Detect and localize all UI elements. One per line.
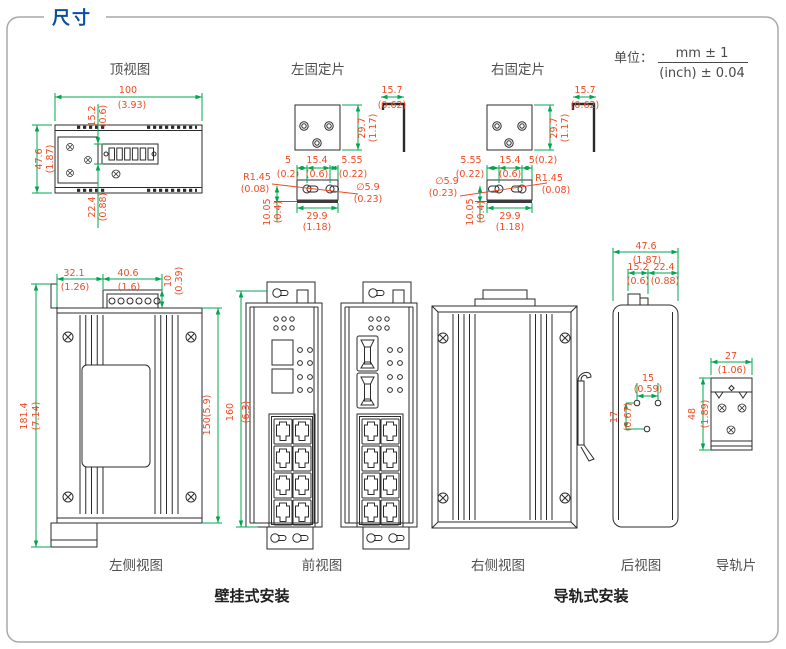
dim-top-bottom-offset-mm: 22.4: [87, 196, 98, 217]
corner-miters: [432, 306, 577, 528]
plate-hole: [325, 122, 333, 130]
dim-lside-total-h-mm: 181.4: [19, 402, 30, 429]
dim-lplate-height-mm: 29.7: [357, 117, 368, 138]
dim-rear-clip-offset-mm: 22.4: [653, 262, 674, 273]
screw-mark: [560, 493, 570, 503]
caption-rear-view: 后视图: [621, 558, 662, 574]
view-rail-plate: 导轨片 27 (1.06) 48 (1.89): [687, 351, 756, 574]
right-side-drawing: [432, 290, 594, 528]
rj45-port: [274, 500, 292, 525]
plate-tab: [297, 290, 308, 303]
rail-plate-dimensions: 27 (1.06) 48 (1.89): [687, 351, 752, 450]
screw-mark: [63, 332, 73, 342]
screw-hole: [634, 400, 640, 406]
rj45-port: [274, 419, 292, 444]
keyhole-slot: [273, 289, 288, 297]
view-right-side: 右侧视图: [432, 290, 594, 574]
dim-rear-clip-w-mm: 15.2: [627, 262, 648, 273]
plate-outline: [487, 105, 532, 150]
fiber-connector: [357, 336, 378, 371]
port-led-column: [388, 348, 403, 393]
keyhole-slot: [369, 289, 384, 297]
dim-rplate-radius-inch: (0.08): [542, 185, 571, 196]
dim-rplate-hole-mm: ∅5.9: [435, 176, 458, 187]
terminal-block: [483, 290, 527, 299]
view-left-side: 左侧视图 32.1 (1.26) 40.: [19, 267, 222, 574]
dimension-page: 尺寸 单位： mm ± 1 (inch) ± 0.04 顶视图: [0, 0, 786, 649]
rear-dimensions: 47.6 (1.87) 15.2 (0.6) 22.4 (0.88) 15 (0…: [609, 241, 679, 431]
dim-lplate-end-mm: 5.55: [341, 155, 362, 166]
plate-hole: [493, 122, 501, 130]
unit-mm-tolerance: mm ± 1: [676, 46, 729, 61]
rj45-port: [381, 500, 399, 525]
keyhole-slot: [389, 534, 404, 542]
dim-lplate-width-mm: 29.9: [306, 211, 327, 222]
label-wall-mount: 壁挂式安装: [214, 587, 290, 605]
fiber-connector: [357, 373, 378, 408]
center-mark: [729, 386, 734, 391]
page-title: 尺寸: [52, 7, 92, 29]
rj45-port: [362, 419, 380, 444]
dim-lside-terminal-w-inch: (1.6): [118, 282, 141, 293]
dim-rplate-height-inch: (1.17): [560, 114, 571, 143]
dim-top-bottom-offset-inch: (0.88): [98, 193, 109, 222]
dim-rplate-end-inch: (0.22): [456, 169, 485, 180]
screw-mark: [438, 493, 448, 503]
dim-rear-hole-v-mm: 17: [609, 411, 620, 423]
led-grid: [274, 317, 294, 330]
dim-rplate-pitch-mm: 15.4: [499, 155, 520, 166]
view-rear: 后视图 47.6 (1.87) 15.2 (0.6) 22.4 (0.88): [609, 241, 679, 574]
dim-top-depth-inch: (1.87): [45, 145, 56, 174]
dim-lplate-edge-inch: (0.2): [277, 169, 300, 180]
screw-mark: [112, 170, 120, 178]
plate-tab: [393, 290, 404, 303]
dim-rplate-hole-inch: (0.23): [429, 188, 458, 199]
screw-mark: [727, 426, 735, 434]
caption-right-side-view: 右侧视图: [471, 558, 525, 574]
dim-rplate-width-inch: (1.18): [496, 222, 525, 233]
dim-rplate-tab-inch: (0.62): [571, 100, 600, 111]
plate-side-profile: [573, 104, 594, 152]
caption-left-plate: 左固定片: [291, 62, 345, 78]
screw-mark: [67, 144, 74, 151]
caption-top-view: 顶视图: [110, 62, 151, 78]
left-plate-slot-view: 5 (0.2) 15.4 (0.6) 5.55 (0.22) R1.45 (0.…: [241, 155, 383, 233]
dim-front-height-inch: (6.3): [241, 401, 252, 424]
dim-lplate-width-inch: (1.18): [303, 222, 332, 233]
dim-rear-hole-pitch-inch: (0.59): [634, 384, 663, 395]
screw-mark: [85, 157, 92, 164]
dim-rear-hole-v-inch: (0.67): [623, 403, 634, 432]
sfp-slot: [272, 340, 293, 365]
dim-top-offset-mm: 15.2: [87, 105, 98, 126]
dim-rear-width-mm: 47.6: [635, 241, 656, 252]
vent-lines: [530, 314, 552, 520]
rj45-port: [274, 446, 292, 471]
screw-hole: [644, 426, 650, 432]
dim-rplate-width-mm: 29.9: [499, 211, 520, 222]
left-plate-face: 29.7 (1.17) 15.7 (0.62): [295, 85, 406, 152]
dim-rplate-thickness-mm: 10.05: [465, 198, 476, 225]
dimension-drawing: 尺寸 单位： mm ± 1 (inch) ± 0.04 顶视图: [0, 0, 786, 649]
rail-plate-outline: [711, 378, 752, 450]
top-mount-plate: [58, 137, 98, 183]
plate-lip: [487, 200, 532, 204]
dim-rplate-thickness-inch: (0.4): [476, 201, 487, 224]
front-device-fiber-st: [341, 282, 417, 549]
dim-lplate-thickness-mm: 10.05: [262, 198, 273, 225]
din-hook: [640, 298, 648, 305]
mount-foot: [51, 523, 97, 547]
dim-lside-body-h: 150(5.9): [202, 395, 213, 436]
dim-lplate-hole-mm: ∅5.9: [356, 182, 379, 193]
port-led-column: [298, 348, 313, 393]
caption-front-view: 前视图: [302, 557, 343, 574]
plate-hole: [518, 122, 526, 130]
dim-rail-height-mm: 48: [687, 408, 698, 420]
plate-lip: [297, 200, 338, 204]
view-right-fixing-plate: 右固定片 29.7 (1.17) 15.7 (0.62): [429, 62, 600, 233]
dim-lside-left-seg-mm: 32.1: [63, 268, 84, 279]
dim-lplate-pitch-inch: (0.6): [306, 169, 329, 180]
dim-lplate-edge-mm: 5: [285, 155, 291, 166]
rj45-port: [293, 473, 311, 498]
rj45-port: [293, 446, 311, 471]
dim-lside-terminal-w-mm: 40.6: [117, 268, 138, 279]
keyhole-slot: [271, 534, 286, 542]
dim-lside-total-h-inch: (7.14): [31, 402, 42, 431]
din-hook: [628, 294, 640, 305]
dim-front-height-mm: 160: [225, 403, 236, 421]
view-top: 顶视图 100 (3.93) 15.2: [32, 62, 202, 228]
dim-rplate-edge: 5(0.2): [529, 155, 558, 166]
dim-lplate-hole-inch: (0.23): [354, 194, 383, 205]
rj45-port: [293, 419, 311, 444]
dim-rplate-height-mm: 29.7: [549, 117, 560, 138]
body-rails: [250, 307, 318, 523]
dim-rplate-end-mm: 5.55: [460, 155, 481, 166]
led-grid: [369, 317, 389, 330]
rj45-port: [381, 446, 399, 471]
dim-rail-width-inch: (1.06): [718, 365, 747, 376]
keyhole-slot: [367, 534, 382, 542]
right-plate-slot-view: 5.55 (0.22) 15.4 (0.6) 5(0.2) R1.45 (0.0…: [429, 155, 571, 233]
screw-mark: [186, 332, 196, 342]
screw-mark: [67, 170, 74, 177]
rj45-port: [293, 500, 311, 525]
rail-hooks: [715, 392, 747, 398]
right-plate-face: 29.7 (1.17) 15.7 (0.62): [487, 85, 599, 152]
dim-rplate-radius-mm: R1.45: [535, 173, 563, 184]
screw-mark: [738, 404, 746, 412]
rj45-port: [381, 419, 399, 444]
plate-outline: [487, 180, 532, 200]
rj45-port: [362, 473, 380, 498]
dim-rail-height-inch: (1.89): [700, 400, 711, 429]
screw-mark: [186, 492, 196, 502]
din-rail-clip: [578, 372, 594, 461]
dim-top-width-mm: 100: [119, 85, 137, 96]
screw-mark: [718, 404, 726, 412]
mount-labels: 壁挂式安装 导轨式安装: [214, 587, 629, 605]
rj45-port: [274, 473, 292, 498]
dim-lside-terminal-h-inch: (0.39): [174, 267, 185, 296]
label-plate: [82, 365, 150, 467]
view-left-fixing-plate: 左固定片 29.7 (1.17) 15.7 (0.62): [241, 62, 407, 233]
plate-hole: [313, 139, 321, 147]
rj45-port: [362, 500, 380, 525]
dim-rail-width-mm: 27: [725, 351, 737, 362]
caption-left-side-view: 左侧视图: [109, 558, 163, 574]
unit-note: 单位： mm ± 1 (inch) ± 0.04: [614, 46, 748, 81]
keyhole-slot: [293, 534, 308, 542]
front-body-outline: [341, 303, 417, 527]
caption-rail-plate: 导轨片: [716, 558, 757, 574]
dim-lside-terminal-h-mm: 10: [163, 275, 174, 287]
sfp-slot: [272, 369, 293, 393]
dim-lplate-thickness-inch: (0.4): [273, 201, 284, 224]
rj45-port: [362, 446, 380, 471]
dim-rear-hole-pitch-mm: 15: [642, 373, 654, 384]
terminal-pins: [109, 148, 154, 160]
left-side-drawing: [51, 284, 202, 547]
rail-plate-drawing: [711, 378, 752, 450]
side-body-outline: [432, 306, 577, 528]
dim-lplate-radius-mm: R1.45: [243, 172, 271, 183]
dim-rear-clip-w-inch: (0.6): [627, 276, 650, 287]
dim-lplate-tab-inch: (0.62): [378, 100, 407, 111]
dim-rplate-tab-mm: 15.7: [574, 85, 595, 96]
dim-lplate-tab-mm: 15.7: [381, 85, 402, 96]
dim-lplate-end-inch: (0.22): [339, 169, 368, 180]
plate-hole: [300, 122, 308, 130]
screw-hole: [655, 400, 661, 406]
dim-rplate-pitch-inch: (0.6): [499, 169, 522, 180]
screw-mark: [63, 492, 73, 502]
dim-lside-left-seg-inch: (1.26): [61, 282, 90, 293]
slot-centerline: [460, 183, 547, 196]
vent-lines: [453, 314, 475, 520]
view-front: 前视图: [225, 282, 417, 574]
dim-top-width-inch: (3.93): [118, 100, 147, 111]
plate-side-profile: [383, 104, 404, 152]
dim-top-depth-mm: 47.6: [34, 148, 45, 169]
dim-lplate-pitch-mm: 15.4: [306, 155, 327, 166]
caption-right-plate: 右固定片: [491, 62, 545, 78]
label-rail-mount: 导轨式安装: [553, 587, 629, 605]
dim-lplate-height-inch: (1.17): [368, 114, 379, 143]
screw-mark: [560, 333, 570, 343]
front-device-fiber-sfp: [246, 282, 322, 549]
mount-tab: [51, 284, 57, 308]
dim-top-offset-inch: (0.6): [98, 105, 109, 128]
vent-lines: [155, 315, 178, 514]
screw-mark: [438, 333, 448, 343]
rj45-port: [381, 473, 399, 498]
unit-label: 单位：: [614, 51, 653, 66]
dim-lplate-radius-inch: (0.08): [241, 184, 270, 195]
dim-rear-clip-offset-inch: (0.88): [651, 276, 680, 287]
unit-inch-tolerance: (inch) ± 0.04: [659, 66, 744, 81]
plate-hole: [505, 139, 513, 147]
top-view-drawing: [55, 125, 202, 193]
